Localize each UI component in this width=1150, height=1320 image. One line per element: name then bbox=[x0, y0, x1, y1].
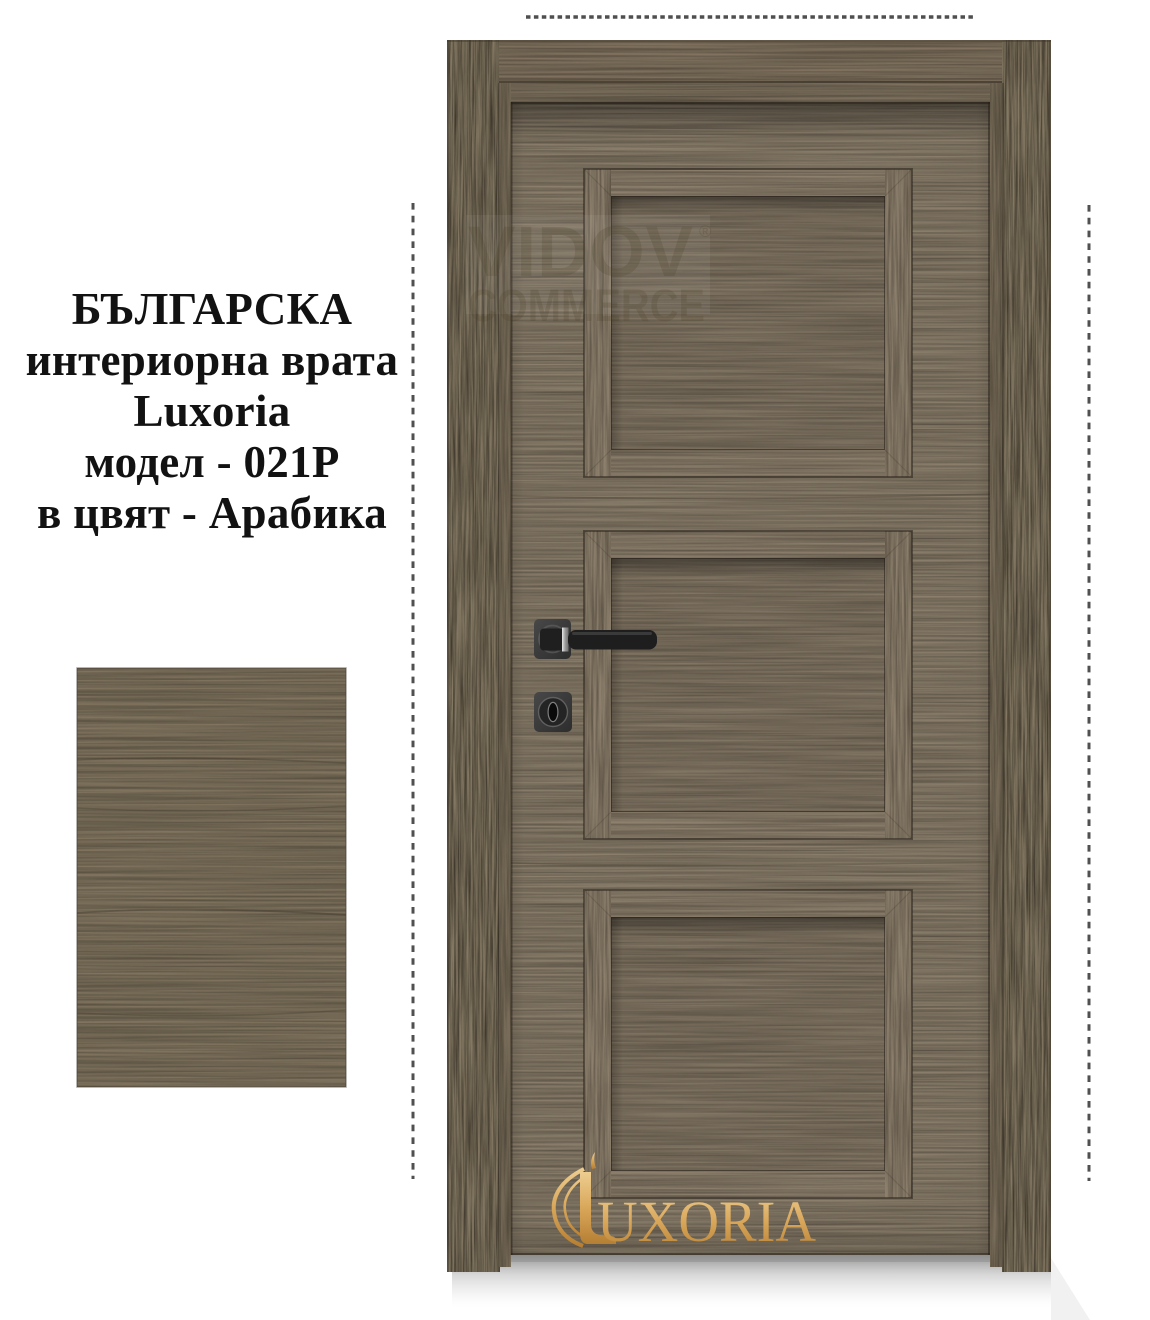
svg-text:UXORIA: UXORIA bbox=[597, 1189, 816, 1254]
svg-text:®: ® bbox=[699, 222, 712, 241]
svg-text:COMMERCE: COMMERCE bbox=[468, 280, 705, 331]
